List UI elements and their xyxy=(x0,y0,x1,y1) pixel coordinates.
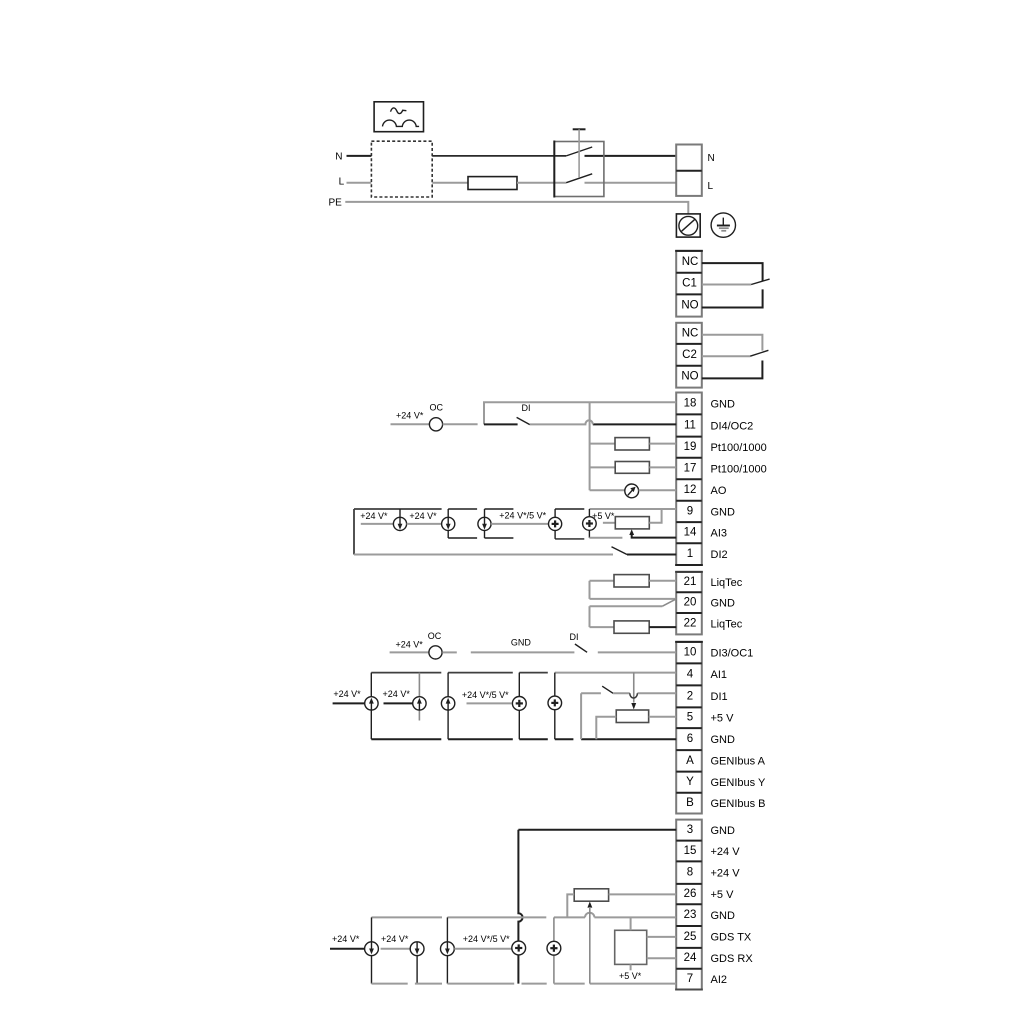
svg-text:DI4/OC2: DI4/OC2 xyxy=(711,420,754,432)
svg-text:C2: C2 xyxy=(682,349,697,361)
svg-text:DI3/OC1: DI3/OC1 xyxy=(711,648,754,660)
svg-text:NO: NO xyxy=(681,299,698,311)
svg-text:DI1: DI1 xyxy=(711,691,728,703)
svg-text:GENIbus A: GENIbus A xyxy=(711,756,766,768)
svg-text:9: 9 xyxy=(687,505,693,517)
svg-text:+24 V*: +24 V* xyxy=(409,511,437,521)
svg-text:+24 V*/5 V*: +24 V*/5 V* xyxy=(462,690,509,700)
svg-text:AI1: AI1 xyxy=(711,669,728,681)
svg-text:Pt100/1000: Pt100/1000 xyxy=(711,442,767,454)
svg-text:GND: GND xyxy=(711,910,736,922)
svg-text:+5 V*: +5 V* xyxy=(619,971,642,981)
svg-text:C1: C1 xyxy=(682,278,697,290)
svg-text:26: 26 xyxy=(684,888,697,900)
svg-text:23: 23 xyxy=(684,909,697,921)
svg-text:L: L xyxy=(339,176,345,187)
svg-text:+24 V: +24 V xyxy=(711,868,741,880)
svg-text:OC: OC xyxy=(430,402,444,412)
svg-text:+24 V*: +24 V* xyxy=(396,411,424,421)
svg-text:GND: GND xyxy=(711,506,736,518)
svg-text:GDS TX: GDS TX xyxy=(711,932,752,944)
svg-text:OC: OC xyxy=(428,631,442,641)
svg-text:+5 V*: +5 V* xyxy=(592,511,615,521)
svg-text:LiqTec: LiqTec xyxy=(711,577,743,589)
svg-text:PE: PE xyxy=(328,198,342,209)
svg-text:+24 V*: +24 V* xyxy=(333,689,361,699)
svg-text:AI3: AI3 xyxy=(711,528,728,540)
svg-text:+5 V: +5 V xyxy=(711,889,735,901)
svg-text:11: 11 xyxy=(684,419,696,431)
svg-text:+24 V: +24 V xyxy=(711,846,741,858)
svg-text:10: 10 xyxy=(684,647,697,659)
svg-text:AO: AO xyxy=(711,485,727,497)
svg-text:NC: NC xyxy=(682,256,699,268)
svg-text:1: 1 xyxy=(687,548,693,560)
svg-text:GND: GND xyxy=(711,597,736,609)
svg-text:3: 3 xyxy=(687,824,693,836)
svg-text:4: 4 xyxy=(687,668,694,680)
svg-text:Pt100/1000: Pt100/1000 xyxy=(711,463,767,475)
svg-text:+24 V*: +24 V* xyxy=(381,934,409,944)
svg-text:Y: Y xyxy=(686,776,694,788)
svg-text:18: 18 xyxy=(684,397,697,409)
svg-text:L: L xyxy=(708,181,714,192)
svg-text:25: 25 xyxy=(684,931,697,943)
svg-text:+24 V*/5 V*: +24 V*/5 V* xyxy=(463,934,510,944)
svg-text:N: N xyxy=(708,153,715,164)
svg-text:GDS RX: GDS RX xyxy=(711,953,754,965)
svg-text:GND: GND xyxy=(711,734,736,746)
svg-text:NC: NC xyxy=(682,327,699,339)
svg-text:7: 7 xyxy=(687,973,693,985)
svg-text:+24 V*: +24 V* xyxy=(395,639,423,649)
svg-text:GENIbus B: GENIbus B xyxy=(711,798,766,810)
svg-text:DI2: DI2 xyxy=(711,549,728,561)
svg-text:A: A xyxy=(686,755,694,767)
svg-text:15: 15 xyxy=(684,845,697,857)
svg-text:GND: GND xyxy=(711,398,736,410)
svg-text:14: 14 xyxy=(684,527,697,539)
svg-text:NO: NO xyxy=(681,371,698,383)
svg-text:5: 5 xyxy=(687,712,693,724)
svg-text:20: 20 xyxy=(684,597,697,609)
svg-text:2: 2 xyxy=(687,690,693,702)
svg-text:12: 12 xyxy=(684,484,697,496)
svg-text:N: N xyxy=(335,151,342,162)
svg-text:+24 V*: +24 V* xyxy=(383,689,411,699)
svg-text:6: 6 xyxy=(687,733,693,745)
svg-text:+24 V*/5 V*: +24 V*/5 V* xyxy=(499,510,546,520)
svg-text:+24 V*: +24 V* xyxy=(332,934,360,944)
svg-text:8: 8 xyxy=(687,867,693,879)
svg-text:21: 21 xyxy=(684,576,697,588)
svg-text:DI: DI xyxy=(570,632,579,642)
svg-text:GND: GND xyxy=(511,638,532,648)
svg-text:B: B xyxy=(686,797,694,809)
svg-text:DI: DI xyxy=(522,403,531,413)
svg-text:19: 19 xyxy=(684,441,697,453)
svg-text:AI2: AI2 xyxy=(711,974,728,986)
svg-text:24: 24 xyxy=(684,952,697,964)
svg-text:22: 22 xyxy=(684,618,697,630)
svg-text:+5 V: +5 V xyxy=(711,713,735,725)
svg-text:GENIbus Y: GENIbus Y xyxy=(711,777,766,789)
svg-text:GND: GND xyxy=(711,825,736,837)
svg-text:17: 17 xyxy=(684,462,697,474)
svg-text:+24 V*: +24 V* xyxy=(360,511,388,521)
svg-text:LiqTec: LiqTec xyxy=(711,619,743,631)
